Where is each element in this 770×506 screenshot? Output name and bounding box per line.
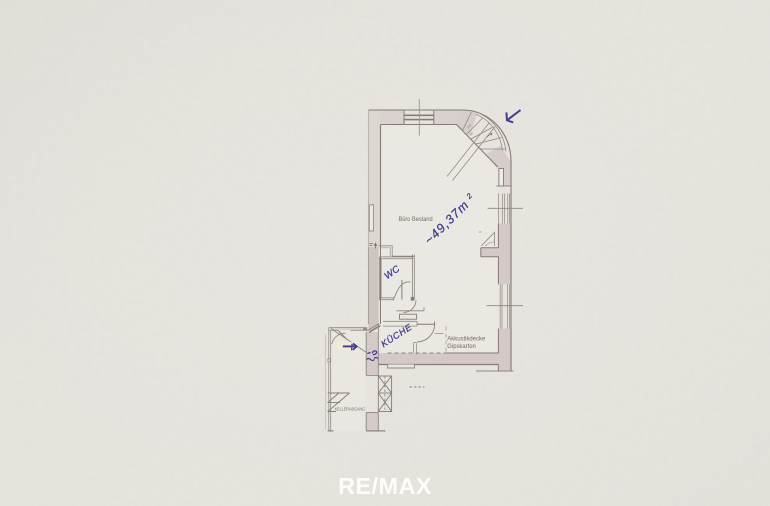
svg-text:Büro Bestand: Büro Bestand <box>399 216 433 223</box>
svg-text:25: 25 <box>479 230 483 234</box>
svg-text:Gipskarton: Gipskarton <box>447 343 476 350</box>
svg-text:Akkustikdecke: Akkustikdecke <box>447 335 485 342</box>
svg-text:KELLERABGANG: KELLERABGANG <box>335 407 366 412</box>
